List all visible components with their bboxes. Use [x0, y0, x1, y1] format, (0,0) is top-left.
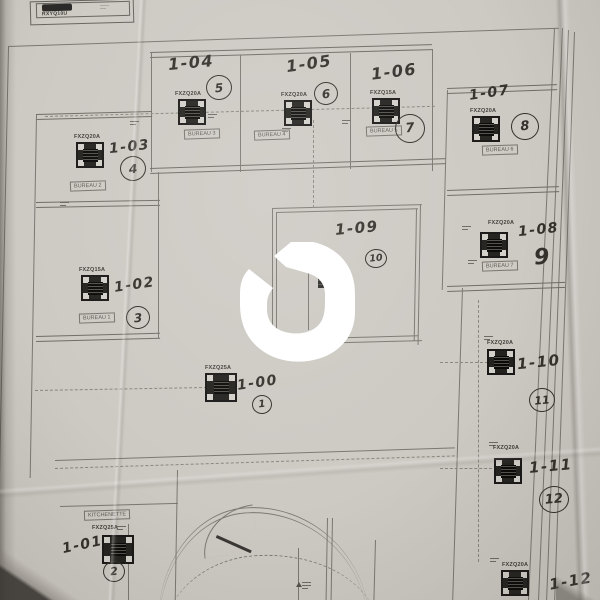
duct-line — [440, 468, 492, 469]
handwritten-unit-id: 1-06 — [370, 59, 418, 83]
cassette-unit-icon — [284, 100, 312, 126]
handwritten-unit-id: 1-02 — [113, 274, 156, 296]
wall-line — [432, 49, 433, 171]
wall-line — [60, 503, 178, 507]
unit-model-label: FXZQ15A — [79, 267, 105, 273]
corner-shadow — [0, 536, 86, 600]
pipe-note — [490, 556, 499, 564]
pipe-note — [468, 258, 477, 266]
wall-line — [373, 540, 376, 600]
wall-line — [447, 186, 559, 196]
handwritten-unit-id: 1-07 — [468, 82, 511, 104]
unit-model-label: FXZQ20A — [502, 562, 528, 568]
pipe-note — [342, 118, 351, 126]
wall-line — [150, 158, 446, 174]
handwritten-unit-id: 1-09 — [334, 217, 379, 239]
handwritten-number: 9 — [533, 244, 550, 270]
cassette-unit-icon — [81, 275, 109, 301]
wall-line — [276, 208, 418, 213]
room-label: BUREAU 4 — [254, 129, 290, 140]
duct-line — [35, 387, 207, 391]
wall-line — [414, 209, 417, 341]
pipe-note — [302, 580, 311, 591]
legend-triangle-icon — [296, 582, 302, 587]
handwritten-circle-number: 7 — [394, 113, 426, 145]
cassette-unit-icon — [205, 373, 237, 402]
room-label: BUREAU 6 — [482, 144, 518, 155]
wall-line — [158, 172, 159, 338]
unit-model-label: FXZQ20A — [281, 92, 307, 98]
wall-line — [240, 55, 241, 172]
unit-model-label: FXZQ20A — [470, 108, 496, 114]
corner-shadow — [556, 572, 600, 600]
handwritten-circle-number: 3 — [125, 305, 151, 330]
duct-line — [478, 300, 479, 562]
room-label: BUREAU 2 — [70, 180, 106, 191]
cassette-unit-icon — [472, 116, 500, 142]
cassette-unit-icon — [494, 458, 522, 484]
wall-line — [350, 53, 351, 169]
handwritten-circle-number: 11 — [528, 387, 556, 413]
handwritten-circle-number: 1 — [251, 394, 273, 415]
cassette-unit-icon — [372, 98, 400, 124]
wall-line — [30, 115, 37, 478]
pipe-note — [208, 112, 217, 120]
duct-line — [313, 120, 314, 208]
wall-line — [452, 288, 463, 600]
wall-line — [447, 282, 565, 292]
room-label: KITCHENETTE — [84, 509, 131, 521]
duct-line — [440, 362, 488, 363]
pipe-note — [130, 119, 139, 127]
handwritten-unit-id: 1-00 — [236, 372, 279, 394]
unit-model-label: FXZQ25A — [92, 525, 118, 531]
unit-model-label: FXZQ25A — [205, 365, 231, 371]
handwritten-unit-id: 1-03 — [108, 137, 150, 157]
room-label: BUREAU 3 — [184, 128, 220, 139]
pipe-note — [117, 524, 126, 532]
cassette-unit-icon — [102, 535, 134, 564]
cassette-unit-icon — [76, 142, 104, 168]
unit-model-label: FXZQ20A — [488, 220, 514, 226]
unit-model-label: FXZQ20A — [175, 91, 201, 97]
brand-watermark-icon — [238, 242, 358, 362]
wall-line — [36, 333, 160, 342]
cassette-unit-icon — [178, 99, 206, 125]
handwritten-circle-number: 5 — [205, 74, 233, 101]
outdoor-unit-model-label: RXYQ10U — [42, 11, 68, 18]
wall-line — [418, 205, 421, 345]
handwritten-circle-number: 10 — [364, 248, 388, 269]
wall-line — [36, 200, 160, 208]
room-label: BUREAU 1 — [79, 312, 115, 323]
unit-model-label: FXZQ20A — [493, 445, 519, 451]
sheet-border-line — [8, 28, 559, 47]
cassette-unit-icon — [487, 349, 515, 375]
unit-model-label: FXZQ15A — [370, 90, 396, 96]
handwritten-unit-id: 1-05 — [285, 51, 333, 76]
handwritten-circle-number: 4 — [119, 155, 147, 182]
pipe-note — [60, 200, 69, 208]
handwritten-circle-number: 8 — [510, 112, 540, 141]
unit-model-label: FXZQ20A — [74, 134, 100, 140]
cassette-unit-icon — [501, 570, 529, 596]
handwritten-unit-id: 1-04 — [167, 51, 215, 74]
wall-line — [55, 447, 455, 461]
pipe-note — [462, 224, 471, 232]
handwritten-circle-number: 6 — [313, 81, 339, 106]
floor-plan-photo: RXYQ10U BUREAU 1 BUREAU 2 BUREAU 3 BUREA… — [0, 0, 600, 600]
handwritten-unit-id: 1-11 — [528, 455, 573, 477]
room-label: BUREAU 7 — [482, 260, 518, 271]
cassette-unit-icon — [480, 232, 508, 258]
unit-model-label: FXZQ20A — [487, 340, 513, 346]
sheet-border-line — [0, 47, 9, 515]
